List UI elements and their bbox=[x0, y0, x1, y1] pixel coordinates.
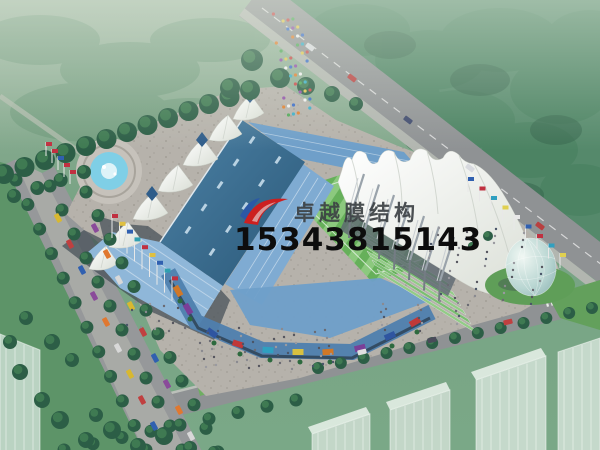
phone-number: 15343815143 bbox=[234, 222, 482, 258]
atmospheric-haze bbox=[0, 0, 600, 150]
rendering-scene: 卓越膜结构 15343815143 bbox=[0, 0, 600, 450]
stadium-aerial-image: 卓越膜结构 15343815143 bbox=[0, 0, 600, 450]
